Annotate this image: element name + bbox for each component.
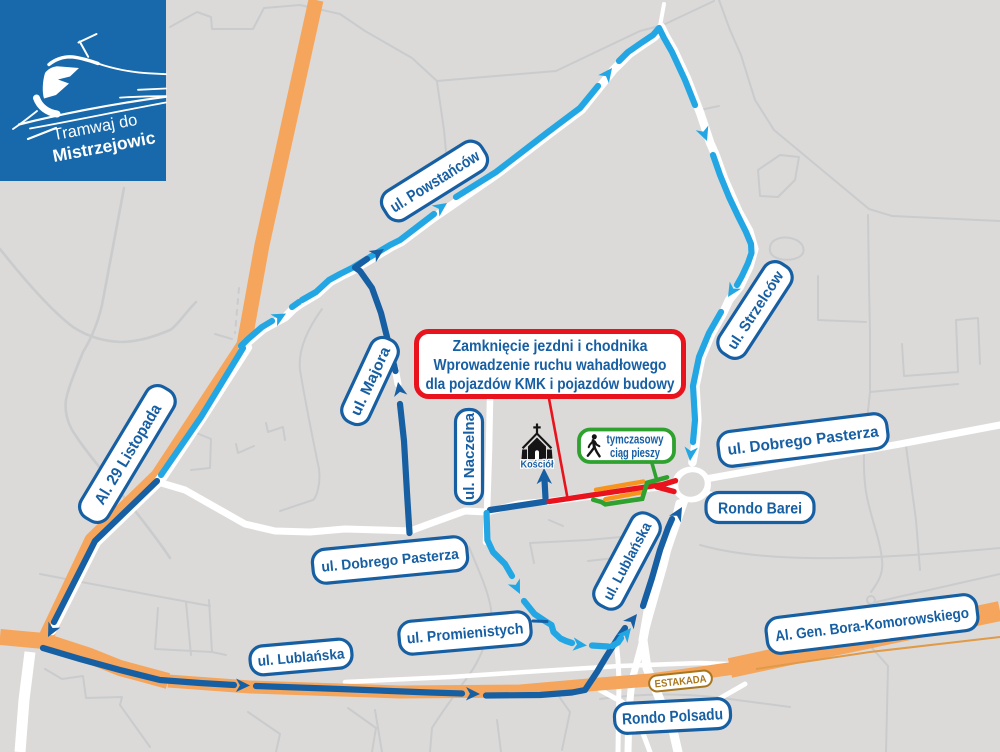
- svg-text:dla pojazdów KMK i pojazdów bu: dla pojazdów KMK i pojazdów budowy: [426, 376, 675, 393]
- svg-text:ul. Naczelna: ul. Naczelna: [462, 412, 478, 500]
- svg-text:Wprowadzenie ruchu wahadłowego: Wprowadzenie ruchu wahadłowego: [434, 357, 667, 374]
- svg-text:tymczasowy: tymczasowy: [607, 433, 664, 447]
- svg-text:Kościół: Kościół: [521, 460, 554, 471]
- svg-text:ciąg pieszy: ciąg pieszy: [610, 446, 660, 460]
- svg-text:Zamknięcie jezdni i chodnika: Zamknięcie jezdni i chodnika: [453, 338, 648, 355]
- svg-text:Rondo Barei: Rondo Barei: [718, 500, 802, 517]
